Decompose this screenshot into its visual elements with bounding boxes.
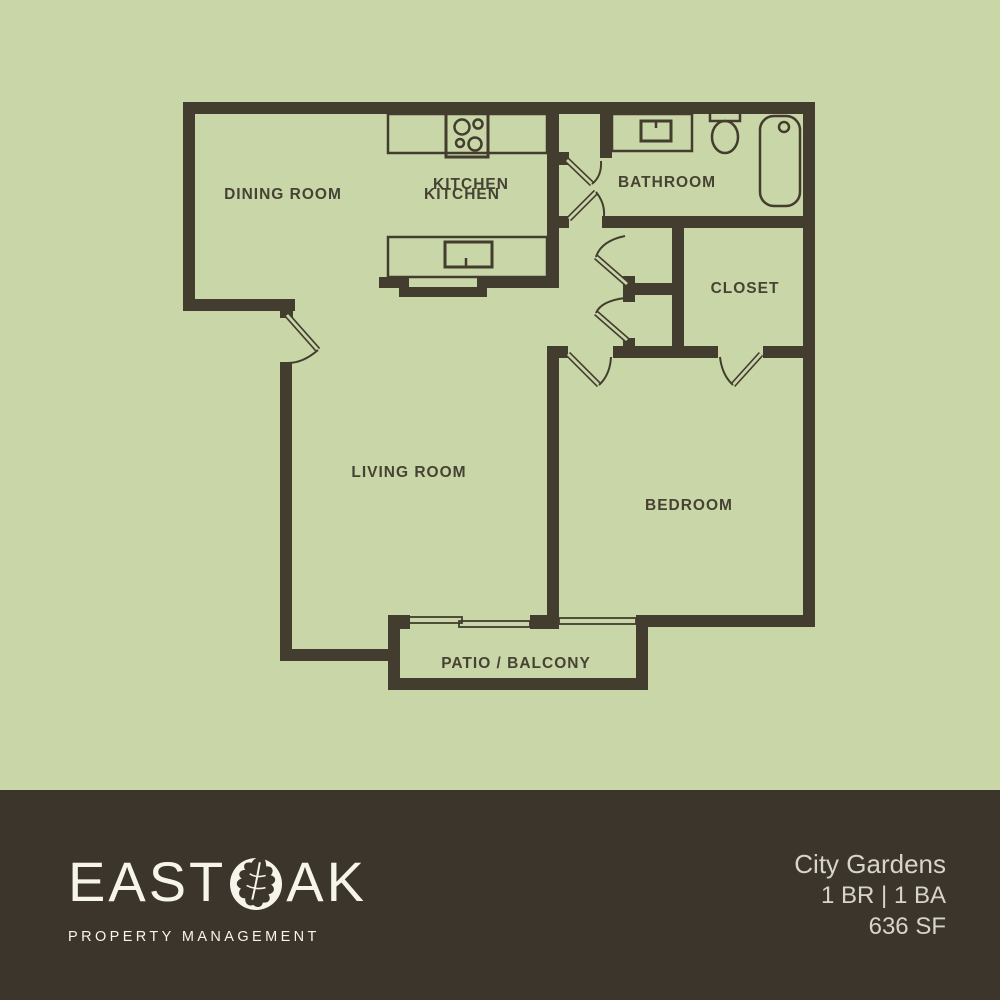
unit-info: City Gardens 1 BR | 1 BA 636 SF	[794, 848, 946, 942]
room-label-dining: DINING ROOM	[224, 186, 342, 203]
toilet-icon	[710, 111, 740, 153]
room-label-patio: PATIO / BALCONY	[441, 655, 591, 672]
wall-closet-left	[672, 216, 684, 358]
door-bedroom	[568, 354, 611, 385]
room-label-kitchen-overprint: KITCHEN	[424, 186, 500, 203]
wall-living-bedroom-divider	[547, 346, 559, 627]
wall-outer-right	[803, 102, 815, 627]
wall-kitchen-right	[547, 102, 559, 287]
door-hall-lower	[596, 298, 627, 340]
wall-living-bottom	[280, 649, 400, 661]
bathtub-icon	[760, 116, 800, 206]
wall-dining-left	[183, 102, 195, 311]
bathroom-sink-icon	[641, 121, 671, 141]
bedroom-window	[559, 618, 636, 624]
floor-plan-area: DINING ROOM KITCHEN KITCHEN BATHROOM CLO…	[0, 0, 1000, 790]
door-bedroom-closet	[720, 354, 761, 385]
wall-bath-bottom-stub	[559, 216, 569, 228]
brand-wordmark: EAST AK	[68, 846, 367, 919]
stove-icon	[446, 112, 488, 157]
wall-bath-left-stub	[600, 102, 612, 158]
brand-logo: EAST AK PROPERTY MANAGEMENT	[68, 846, 367, 945]
room-label-bedroom: BEDROOM	[645, 497, 733, 514]
property-name: City Gardens	[794, 848, 946, 880]
wall-bath-bottom	[602, 216, 815, 228]
door-bathroom	[569, 192, 604, 219]
brand-text-ak: AK	[286, 854, 367, 910]
wall-kitchen-bar-5	[477, 277, 559, 288]
patio-sliding-door	[408, 617, 530, 627]
wall-living-left	[280, 362, 292, 661]
wall-bedroom-top-right	[763, 346, 815, 358]
brand-text-east: EAST	[68, 854, 226, 910]
unit-bed-bath: 1 BR | 1 BA	[794, 880, 946, 911]
kitchen-sink-icon	[445, 242, 492, 267]
wall-patio-stub-left	[388, 615, 410, 629]
brand-tagline: PROPERTY MANAGEMENT	[68, 929, 367, 945]
wall-bedroom-top-stub	[547, 346, 568, 358]
room-label-bathroom: BATHROOM	[618, 174, 716, 191]
room-label-living: LIVING ROOM	[351, 464, 466, 481]
wall-patio-right	[636, 616, 648, 690]
room-label-closet: CLOSET	[711, 280, 780, 297]
flyer-canvas: DINING ROOM KITCHEN KITCHEN BATHROOM CLO…	[0, 0, 1000, 1000]
footer-bar: EAST AK PROPERTY MANAGEMENT City Gardens	[0, 790, 1000, 1000]
door-hall-upper	[596, 236, 627, 284]
wall-patio-bottom	[388, 678, 648, 690]
wall-bedroom-bottom	[636, 615, 815, 627]
floor-plan-svg: DINING ROOM KITCHEN KITCHEN BATHROOM CLO…	[0, 0, 1000, 790]
wall-dining-bottom	[183, 299, 295, 311]
unit-square-footage: 636 SF	[794, 911, 946, 942]
door-entry	[287, 315, 318, 363]
door-linen-closet	[567, 160, 601, 184]
oak-leaf-icon	[228, 848, 284, 921]
wall-kitchen-bar-3	[399, 287, 487, 297]
